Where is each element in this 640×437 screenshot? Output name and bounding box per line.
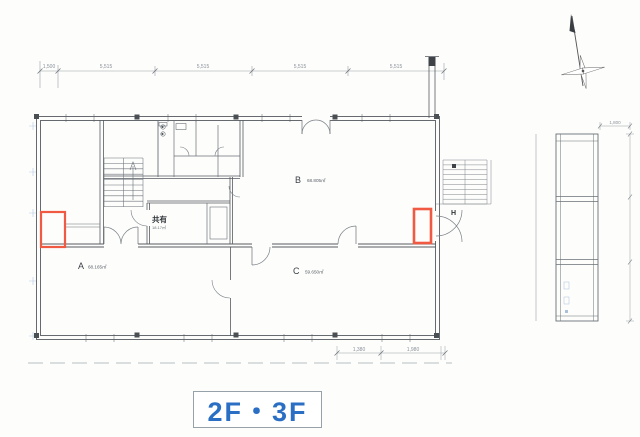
room-c-area: 59.650㎡ bbox=[305, 269, 324, 275]
room-h-label: H bbox=[451, 210, 456, 217]
top-right-wall-stub bbox=[425, 57, 439, 119]
elevation-stamps bbox=[564, 282, 569, 313]
dim-top-4: 5,515 bbox=[294, 64, 307, 70]
highlight-left-shaft bbox=[41, 212, 65, 247]
top-dimension-line: 1,500 5,515 5,515 5,515 5,515 bbox=[38, 61, 447, 88]
north-arrow-icon bbox=[559, 14, 608, 93]
dim-side: 1,800 bbox=[609, 120, 621, 125]
floor-title-label: 2F・3F bbox=[207, 390, 307, 429]
floor-title-box: 2F・3F bbox=[193, 391, 322, 428]
dim-bottom-1: 1,380 bbox=[353, 347, 366, 353]
room-shared-area: 18.17㎡ bbox=[152, 224, 166, 230]
room-a-area: 68.165㎡ bbox=[88, 264, 107, 270]
room-b-label: B bbox=[295, 175, 301, 185]
highlight-right-shaft bbox=[414, 209, 431, 243]
exterior-stair: H bbox=[436, 160, 491, 217]
room-c-label: C bbox=[293, 266, 300, 276]
toilet-fixtures bbox=[159, 123, 186, 137]
east-exit-door bbox=[433, 210, 462, 242]
building-outline bbox=[34, 57, 440, 343]
window-ticks bbox=[66, 114, 410, 342]
dim-top-3: 5,515 bbox=[197, 64, 210, 70]
staircase bbox=[104, 158, 143, 244]
dim-bottom-2: 1,980 bbox=[407, 347, 420, 353]
left-reference-ticks bbox=[29, 122, 37, 340]
floor-plan-drawing: 1,500 5,515 5,515 5,515 5,515 bbox=[0, 0, 640, 437]
bottom-dimension: 1,380 1,980 bbox=[335, 346, 448, 360]
dim-top-2: 5,515 bbox=[100, 64, 113, 70]
room-shared-label: 共有 bbox=[152, 214, 167, 224]
dim-top-1: 1,500 bbox=[43, 64, 56, 70]
room-a-label: A bbox=[78, 261, 84, 271]
interior-walls bbox=[40, 120, 436, 336]
floor-plan-sheet: 1,500 5,515 5,515 5,515 5,515 bbox=[0, 0, 640, 437]
utility-rooms bbox=[158, 120, 240, 197]
structural-columns bbox=[34, 114, 439, 338]
shared-room: 共有 18.17㎡ bbox=[131, 201, 230, 244]
side-elevation: 1,800 bbox=[536, 120, 634, 324]
room-b-area: 68.805㎡ bbox=[307, 177, 326, 183]
top-entrance-door bbox=[302, 113, 330, 134]
dim-top-5: 5,515 bbox=[390, 64, 403, 70]
